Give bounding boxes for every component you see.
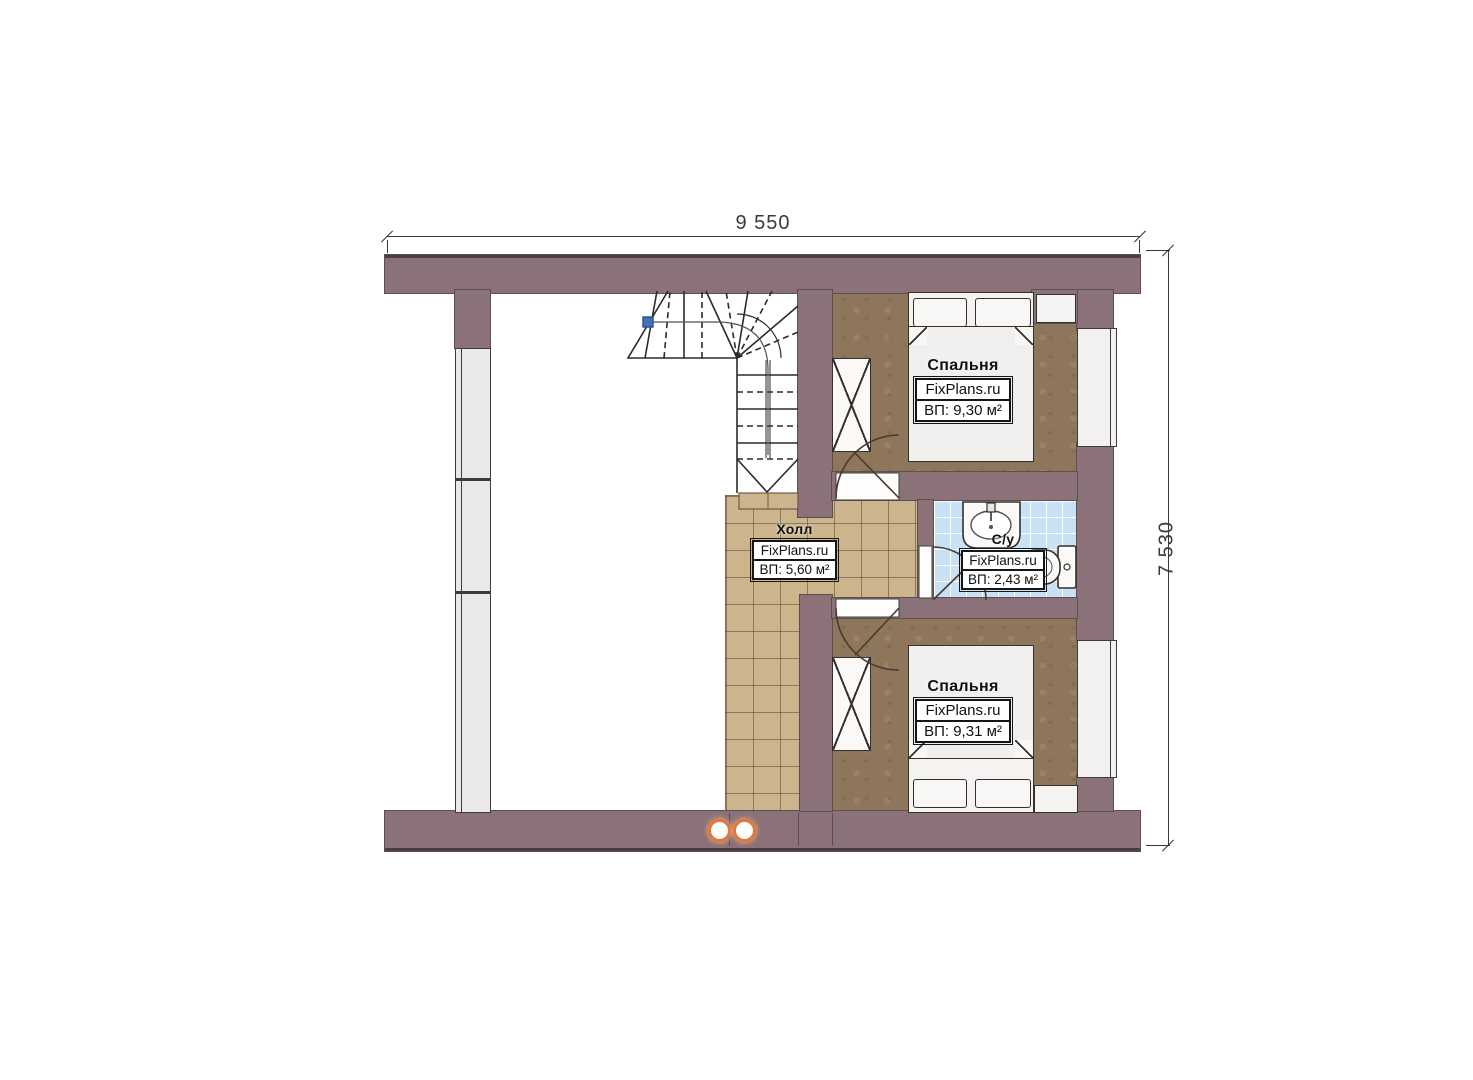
info-box: FixPlans.ru ВП: 5,60 м² bbox=[752, 540, 836, 580]
window-frame-line bbox=[1110, 329, 1111, 446]
window-right-top bbox=[1077, 328, 1117, 447]
stairs-outline bbox=[628, 291, 737, 493]
wall-right-c bbox=[1077, 775, 1113, 811]
vent-flue-icon bbox=[708, 819, 731, 842]
stairs-arrow bbox=[737, 459, 798, 492]
room-label-bathroom: С/у FixPlans.ru ВП: 2,43 м² bbox=[935, 531, 1071, 590]
stairs-start-node bbox=[643, 317, 653, 327]
dimension-right-line bbox=[1168, 250, 1169, 845]
room-area: ВП: 9,30 м² bbox=[917, 399, 1009, 420]
stairs-winders bbox=[706, 291, 798, 358]
info-box: FixPlans.ru ВП: 9,30 м² bbox=[915, 378, 1011, 422]
stairs-walk-line bbox=[648, 322, 768, 455]
window-left bbox=[455, 348, 491, 813]
pillow bbox=[913, 298, 967, 327]
wardrobe-icon bbox=[832, 358, 871, 452]
watermark: FixPlans.ru bbox=[963, 552, 1043, 569]
pillow bbox=[913, 779, 967, 808]
dimension-top-label: 9 550 bbox=[700, 212, 826, 235]
pillow bbox=[975, 779, 1031, 808]
blanket-fold bbox=[909, 327, 927, 345]
room-label-hall: Холл FixPlans.ru ВП: 5,60 м² bbox=[722, 521, 867, 580]
room-label-bedroom-bottom: Спальня FixPlans.ru ВП: 9,31 м² bbox=[888, 678, 1038, 743]
dimension-extension bbox=[1146, 250, 1170, 251]
dimension-extension bbox=[1139, 240, 1140, 253]
window-right-bottom bbox=[1077, 640, 1117, 778]
room-name: Холл bbox=[722, 521, 867, 537]
window-frame-line bbox=[461, 349, 462, 812]
room-name: Спальня bbox=[888, 357, 1038, 375]
dimension-extension bbox=[1146, 845, 1170, 846]
wall-right-a bbox=[1077, 290, 1113, 330]
watermark: FixPlans.ru bbox=[917, 380, 1009, 399]
window-divider bbox=[456, 591, 490, 594]
wall-right-b bbox=[1077, 443, 1113, 640]
room-area: ВП: 2,43 м² bbox=[963, 569, 1043, 588]
pillow bbox=[975, 298, 1031, 327]
wall-bedroom-bottom-hall bbox=[832, 598, 1077, 618]
wall-bottom bbox=[385, 811, 1140, 851]
wall-joint bbox=[832, 813, 833, 846]
nightstand bbox=[1034, 785, 1078, 813]
info-box: FixPlans.ru ВП: 9,31 м² bbox=[915, 699, 1011, 743]
nightstand bbox=[1036, 294, 1076, 323]
wall-bathroom-left bbox=[918, 500, 933, 600]
room-name: С/у bbox=[935, 531, 1071, 547]
wall-bedroom-bottom-left bbox=[800, 595, 832, 811]
room-area: ВП: 5,60 м² bbox=[754, 559, 834, 578]
wall-joint bbox=[798, 813, 799, 846]
window-divider bbox=[456, 478, 490, 481]
dimension-right-label: 7 530 bbox=[1156, 504, 1179, 594]
wall-bedroom-top-hall bbox=[832, 472, 1077, 500]
room-area: ВП: 9,31 м² bbox=[917, 720, 1009, 741]
window-frame-line bbox=[1110, 641, 1111, 777]
room-label-bedroom-top: Спальня FixPlans.ru ВП: 9,30 м² bbox=[888, 357, 1038, 422]
wardrobe-icon bbox=[832, 657, 871, 751]
room-name: Спальня bbox=[888, 678, 1038, 696]
wall-left-top bbox=[455, 290, 490, 348]
watermark: FixPlans.ru bbox=[917, 701, 1009, 720]
stairs bbox=[628, 291, 798, 509]
dimension-top-line bbox=[387, 236, 1140, 237]
info-box: FixPlans.ru ВП: 2,43 м² bbox=[961, 550, 1045, 590]
wall-top bbox=[385, 255, 1140, 293]
floor-plan: Спальня FixPlans.ru ВП: 9,30 м² Холл Fix… bbox=[0, 0, 1473, 1080]
wall-stairwell bbox=[798, 290, 832, 517]
dimension-extension bbox=[387, 240, 388, 253]
blanket-fold bbox=[1015, 327, 1033, 345]
vent-flue-icon bbox=[733, 819, 756, 842]
watermark: FixPlans.ru bbox=[754, 542, 834, 559]
